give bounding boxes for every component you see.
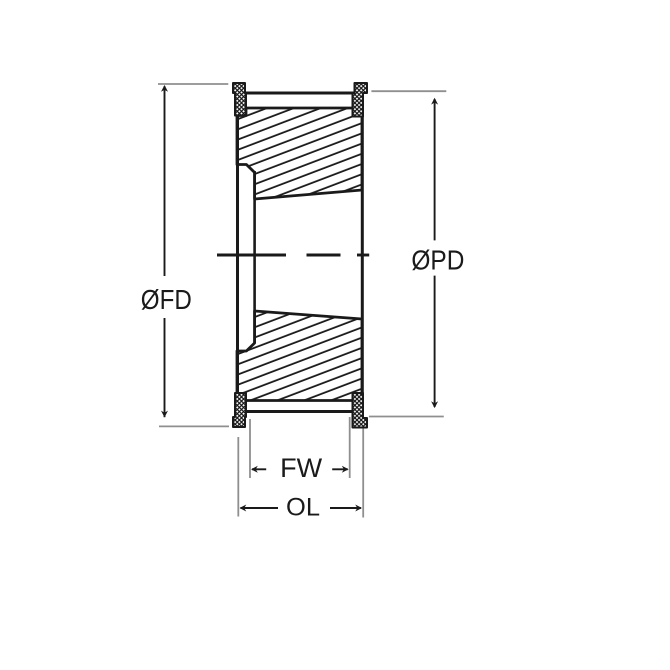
- svg-text:FW: FW: [280, 453, 322, 483]
- svg-text:ØPD: ØPD: [411, 244, 464, 275]
- svg-text:OL: OL: [286, 494, 320, 522]
- svg-text:ØFD: ØFD: [141, 284, 192, 315]
